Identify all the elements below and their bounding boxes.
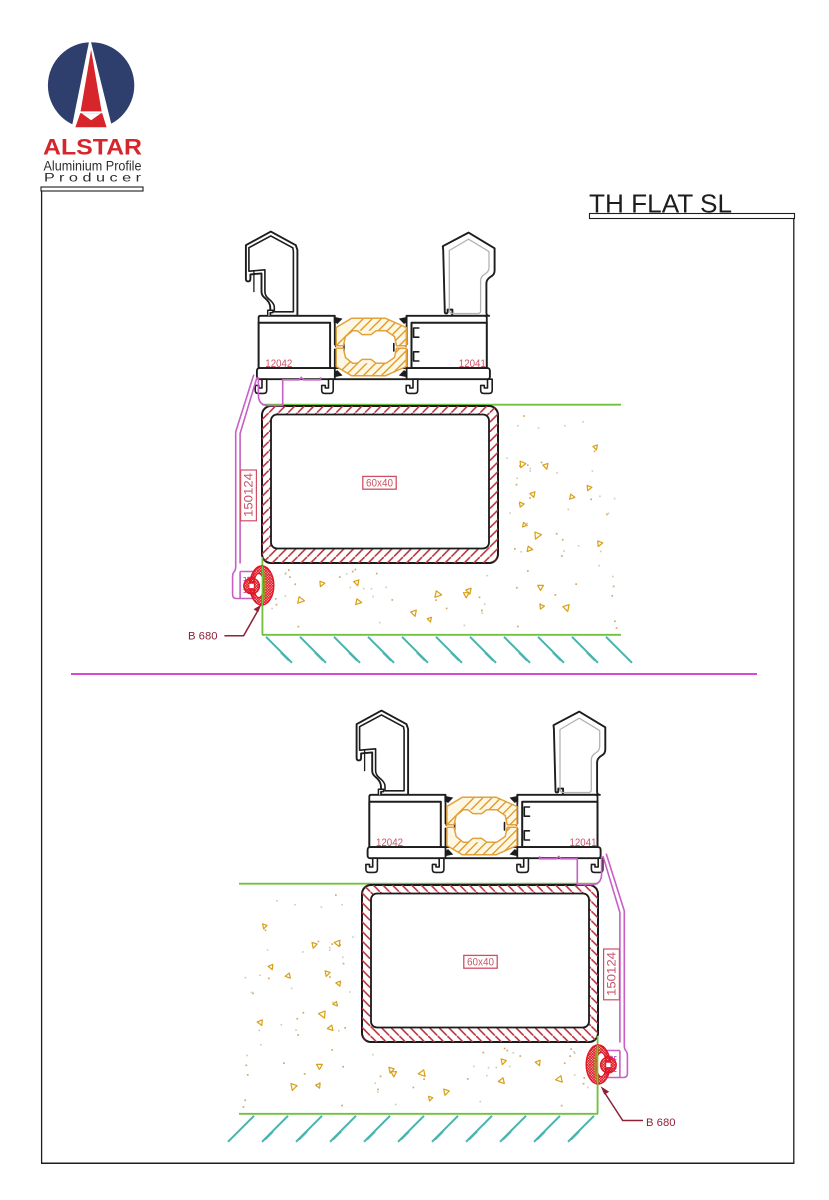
svg-text:B 680: B 680	[188, 631, 218, 643]
svg-text:12041: 12041	[570, 837, 597, 849]
svg-text:12042: 12042	[376, 837, 403, 849]
svg-text:150124: 150124	[607, 951, 619, 996]
svg-text:150124: 150124	[244, 472, 256, 517]
svg-text:60x40: 60x40	[467, 957, 494, 969]
svg-text:12042: 12042	[265, 358, 292, 370]
svg-text:P r o d u c e r: P r o d u c e r	[44, 171, 141, 185]
svg-text:60x40: 60x40	[366, 478, 393, 490]
svg-text:12041: 12041	[459, 358, 486, 370]
svg-text:TH FLAT SL: TH FLAT SL	[589, 189, 732, 219]
svg-text:ALSTAR: ALSTAR	[43, 135, 142, 160]
svg-text:B 680: B 680	[646, 1117, 676, 1129]
